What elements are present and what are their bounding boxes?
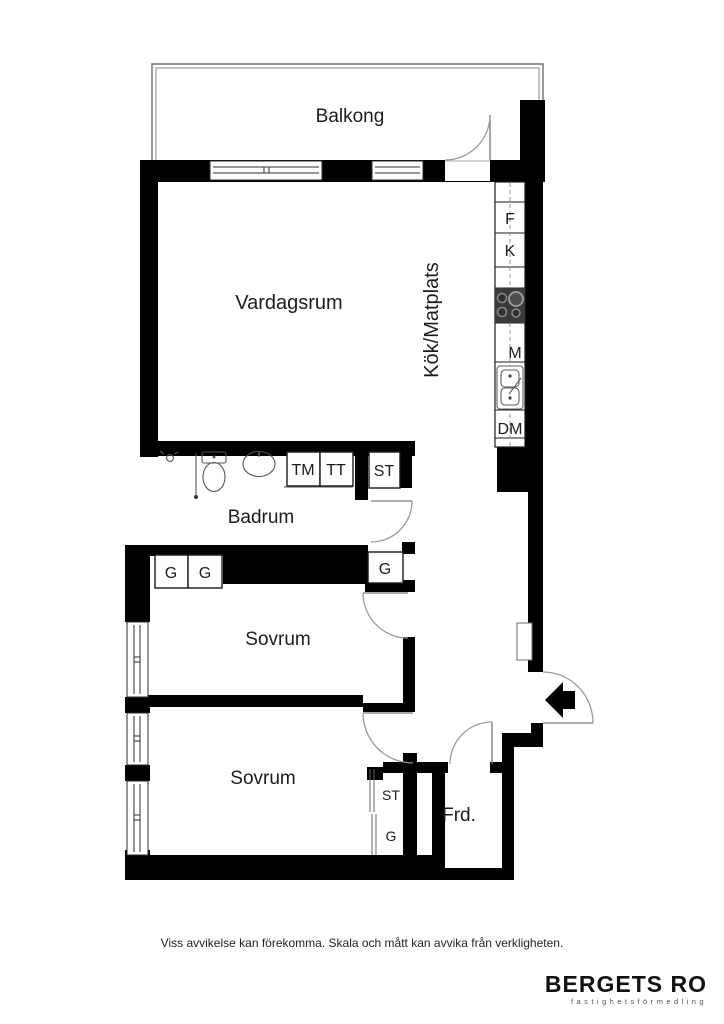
wardrobe2-label: G — [199, 565, 211, 582]
bedroom1-door — [363, 593, 408, 638]
bathroom-door — [371, 501, 412, 542]
shower-icon — [160, 451, 198, 499]
sink-icon — [497, 366, 523, 409]
doors — [363, 115, 593, 764]
bedroom2-label: Sovrum — [230, 768, 295, 789]
fridge-label: K — [505, 243, 516, 260]
toilet-icon — [202, 452, 226, 492]
electrical-cabinet — [517, 623, 532, 660]
wall-segment — [502, 733, 543, 747]
washing-machine-label: TM — [291, 462, 314, 479]
cleaning-closet-label: ST — [374, 463, 395, 480]
wardrobe1-label: G — [165, 565, 177, 582]
wall-segment — [400, 443, 412, 488]
tumble-dryer-label: TT — [326, 462, 346, 479]
washbasin-icon — [243, 451, 275, 477]
wall-segment — [128, 855, 435, 880]
bathroom-label: Badrum — [228, 507, 295, 528]
window-top-1 — [210, 161, 322, 180]
wall-segment — [140, 160, 158, 457]
bedroom2-cleaning-label: ST — [382, 787, 400, 803]
brand-tagline: fastighetsförmedling — [507, 997, 707, 1006]
floor-plan-drawing: Balkong Vardagsrum Kök/Matplats Badrum S… — [0, 0, 724, 1024]
dishwasher-label: DM — [498, 421, 523, 438]
bedroom2-wardrobe-label: G — [386, 828, 397, 844]
wall-segment — [367, 767, 383, 780]
wall-segment — [363, 703, 415, 712]
entrance-arrow-icon — [545, 682, 575, 718]
bedroom2-closet-doors — [370, 769, 376, 855]
wall-segment — [502, 747, 514, 880]
balcony-label: Balkong — [316, 106, 385, 127]
walls — [125, 100, 545, 880]
floor-plan-page: Balkong Vardagsrum Kök/Matplats Badrum S… — [0, 0, 724, 1024]
wall-segment — [125, 765, 150, 781]
bedroom1-label: Sovrum — [245, 629, 310, 650]
wall-segment — [125, 545, 150, 622]
kitchen-label: Kök/Matplats — [421, 262, 443, 378]
window-left-2 — [127, 713, 148, 765]
wall-segment — [525, 160, 543, 450]
wall-segment — [497, 447, 543, 492]
wall-segment — [128, 695, 363, 707]
window-left-3 — [127, 781, 148, 855]
wall-segment — [520, 100, 545, 162]
brand-name: BERGETS RO — [507, 972, 707, 996]
wall-segment — [403, 637, 415, 712]
storage-door — [450, 722, 492, 764]
stove-icon — [495, 288, 525, 323]
storage-label: Frd. — [442, 805, 476, 826]
living-room-label: Vardagsrum — [235, 292, 342, 314]
wall-segment — [402, 542, 415, 554]
wall-segment — [355, 443, 368, 500]
wall-segment — [435, 868, 513, 880]
wall-segment — [223, 545, 368, 584]
freezer-label: F — [505, 211, 515, 228]
brand-logo: BERGETS RO fastighetsförmedling — [507, 972, 707, 1006]
hall-wardrobe-label: G — [379, 561, 391, 578]
balcony-door — [445, 115, 490, 181]
microwave-label: M — [508, 345, 521, 362]
window-top-2 — [372, 161, 423, 180]
disclaimer-text: Viss avvikelse kan förekomma. Skala och … — [0, 936, 724, 950]
window-left-1 — [127, 622, 148, 697]
